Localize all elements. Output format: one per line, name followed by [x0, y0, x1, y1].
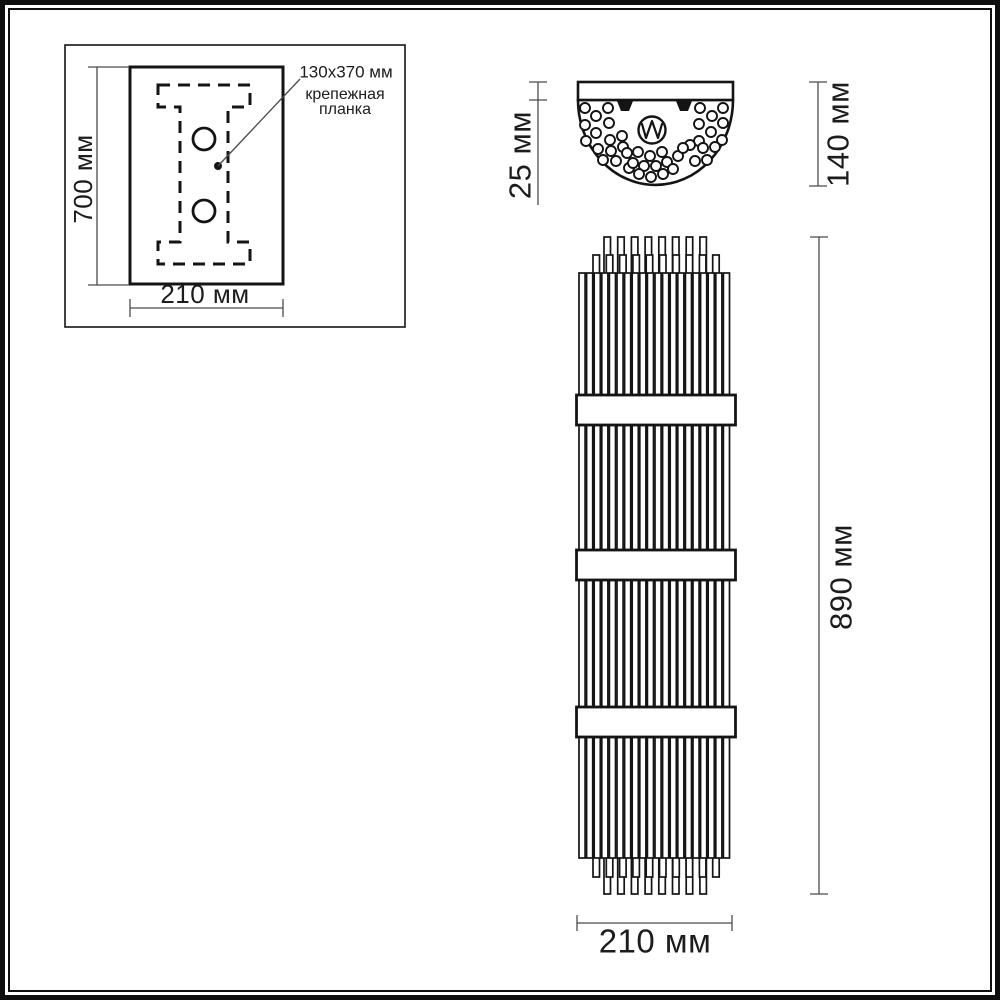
front-view-width-label: 210 мм [599, 925, 712, 958]
panel-width-label: 210 мм [160, 281, 249, 307]
panel-height-label: 700 мм [70, 134, 96, 223]
screw-hole-bottom-icon [193, 200, 215, 222]
wall-bar [578, 82, 733, 100]
front-view [577, 237, 829, 931]
drawing-sheet: 700 мм 210 мм 130x370 мм крепежная планк… [0, 0, 1000, 1000]
top-view-total-depth-label: 140 мм [823, 81, 854, 187]
screw-hole-top-icon [193, 128, 215, 150]
top-view-depth-label: 25 мм [505, 111, 536, 199]
lamp-symbol-icon [639, 117, 666, 144]
top-view [529, 82, 827, 205]
plate-note-size: 130x370 мм [299, 64, 392, 81]
band-middle [577, 550, 736, 580]
band-top [577, 395, 736, 425]
band-bottom [577, 707, 736, 737]
front-view-height-label: 890 мм [826, 524, 857, 630]
plate-note-word2: планка [319, 102, 371, 118]
wall-plate-outline [130, 67, 283, 284]
